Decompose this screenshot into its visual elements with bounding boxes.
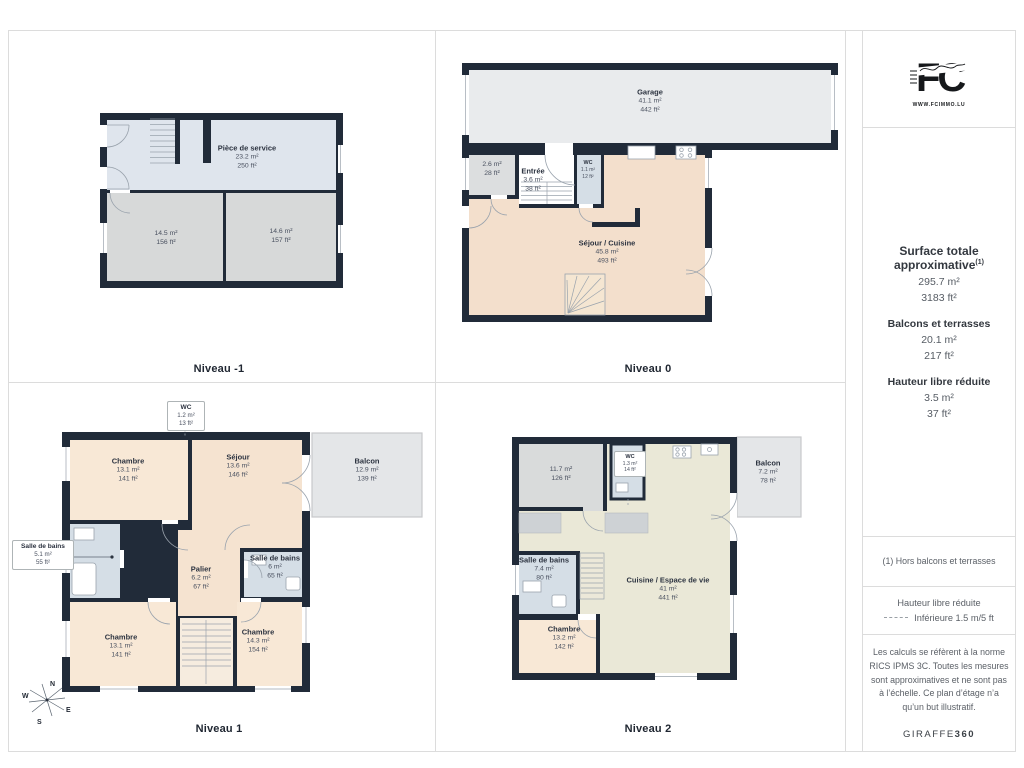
floorplan-niveau0 xyxy=(455,58,845,328)
stairs-icon xyxy=(580,553,604,599)
svg-text:N: N xyxy=(50,681,55,688)
reduced-height-heading: Hauteur libre réduite xyxy=(888,376,991,388)
level-caption-2: Niveau 2 xyxy=(625,723,672,735)
agency-logo: FC WWW.FCIMMO.LU xyxy=(863,30,1015,127)
agency-url: WWW.FCIMMO.LU xyxy=(913,102,966,108)
agency-logo-mark: FC xyxy=(904,49,974,101)
divider xyxy=(435,30,436,752)
divider xyxy=(8,751,1015,752)
footnote: (1) Hors balcons et terrasses xyxy=(863,537,1015,585)
disclaimer-block: Les calculs se réfèrent à la norme RICS … xyxy=(863,635,1015,751)
stairs-icon xyxy=(565,274,605,315)
divider xyxy=(1015,30,1016,752)
wc-callout: WC 1.3 m² 14 ft² xyxy=(614,451,646,477)
balconies-m2: 20.1 m² xyxy=(921,334,957,346)
dashed-line-icon xyxy=(884,617,908,618)
svg-text:FC: FC xyxy=(916,56,965,100)
total-ft2: 3183 ft² xyxy=(921,292,957,304)
floorplan-sheet: Pièce de service 23.2 m² 250 ft² 14.5 m²… xyxy=(0,0,1024,768)
level-caption-1: Niveau 1 xyxy=(196,723,243,735)
level-caption-minus1: Niveau -1 xyxy=(194,363,245,375)
bathroom-callout: Salle de bains 5.1 m² 55 ft² xyxy=(12,540,74,570)
legend: Hauteur libre réduite Inférieure 1.5 m/5… xyxy=(863,587,1015,633)
totals-heading: Surface totale approximative(1) xyxy=(863,244,1015,272)
floorplan-niveau-minus1 xyxy=(95,105,350,295)
level-caption-0: Niveau 0 xyxy=(625,363,672,375)
stairs-icon xyxy=(180,618,233,686)
svg-text:W: W xyxy=(22,693,29,700)
compass-icon: N W E S xyxy=(20,676,76,728)
floorplan-niveau2 xyxy=(440,395,860,740)
balconies-ft2: 217 ft² xyxy=(924,350,954,362)
svg-text:E: E xyxy=(66,707,71,714)
disclaimer-text: Les calculs se réfèrent à la norme RICS … xyxy=(869,646,1009,714)
surface-totals: Surface totale approximative(1) 295.7 m²… xyxy=(863,128,1015,536)
reduced-height-m2: 3.5 m² xyxy=(924,392,954,404)
giraffe360-brand: GIRAFFE360 xyxy=(903,729,975,740)
total-m2: 295.7 m² xyxy=(918,276,959,288)
balconies-heading: Balcons et terrasses xyxy=(888,318,991,330)
svg-text:S: S xyxy=(37,719,42,726)
reduced-height-ft2: 37 ft² xyxy=(927,408,951,420)
divider xyxy=(8,382,846,383)
wc-callout: WC 1.2 m² 13 ft² xyxy=(167,401,205,431)
